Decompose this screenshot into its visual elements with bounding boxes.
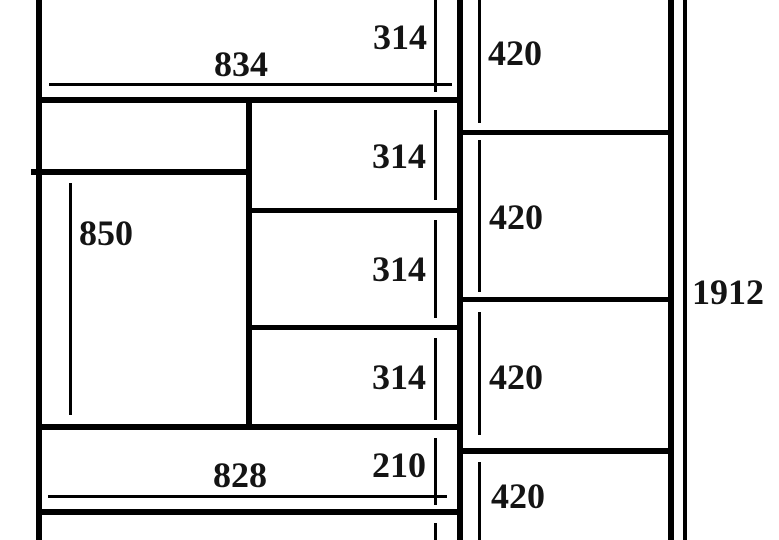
shelf-line-314-a xyxy=(246,208,463,213)
dim-label-828: 828 xyxy=(213,457,267,493)
dim-line-314-2 xyxy=(434,110,437,200)
shelf-line-left xyxy=(31,169,252,175)
shelf-line-top xyxy=(36,97,463,103)
panel-center-divider-line xyxy=(457,0,463,540)
dim-label-314-2: 314 xyxy=(372,138,426,174)
panel-middle-divider-line xyxy=(246,97,252,430)
shelf-line-bottom-b xyxy=(36,509,463,515)
dim-label-314-3: 314 xyxy=(372,251,426,287)
dim-label-210: 210 xyxy=(372,447,426,483)
dim-line-850 xyxy=(69,183,72,415)
dim-line-314-3 xyxy=(434,220,437,318)
dim-label-420-3: 420 xyxy=(489,359,543,395)
dim-label-314-1: 314 xyxy=(373,19,427,55)
panel-left-edge-line xyxy=(36,0,42,540)
dim-line-420-1 xyxy=(478,0,481,123)
shelf-line-right-1 xyxy=(457,130,674,135)
dim-line-1912 xyxy=(683,0,687,540)
dim-line-bottom xyxy=(434,523,437,540)
dim-line-420-2 xyxy=(478,140,481,292)
panel-right-edge-line xyxy=(668,0,674,540)
dim-line-314-4 xyxy=(434,338,437,420)
dim-label-420-1: 420 xyxy=(488,35,542,71)
dim-label-850: 850 xyxy=(79,215,133,251)
dim-label-420-2: 420 xyxy=(489,199,543,235)
dim-line-828 xyxy=(48,495,447,498)
dim-label-420-4: 420 xyxy=(491,478,545,514)
cutting-diagram: 314 420 834 314 420 850 314 1912 314 420… xyxy=(0,0,779,540)
dim-line-314-1 xyxy=(434,0,437,92)
dim-label-1912: 1912 xyxy=(692,274,764,310)
dim-label-314-4: 314 xyxy=(372,359,426,395)
dim-line-420-3 xyxy=(478,312,481,435)
dim-label-834: 834 xyxy=(214,46,268,82)
shelf-line-314-b xyxy=(246,325,463,330)
dim-line-420-4 xyxy=(478,462,481,540)
shelf-line-bottom-a xyxy=(36,424,463,430)
shelf-line-right-2 xyxy=(457,297,674,302)
shelf-line-right-3 xyxy=(457,448,674,454)
